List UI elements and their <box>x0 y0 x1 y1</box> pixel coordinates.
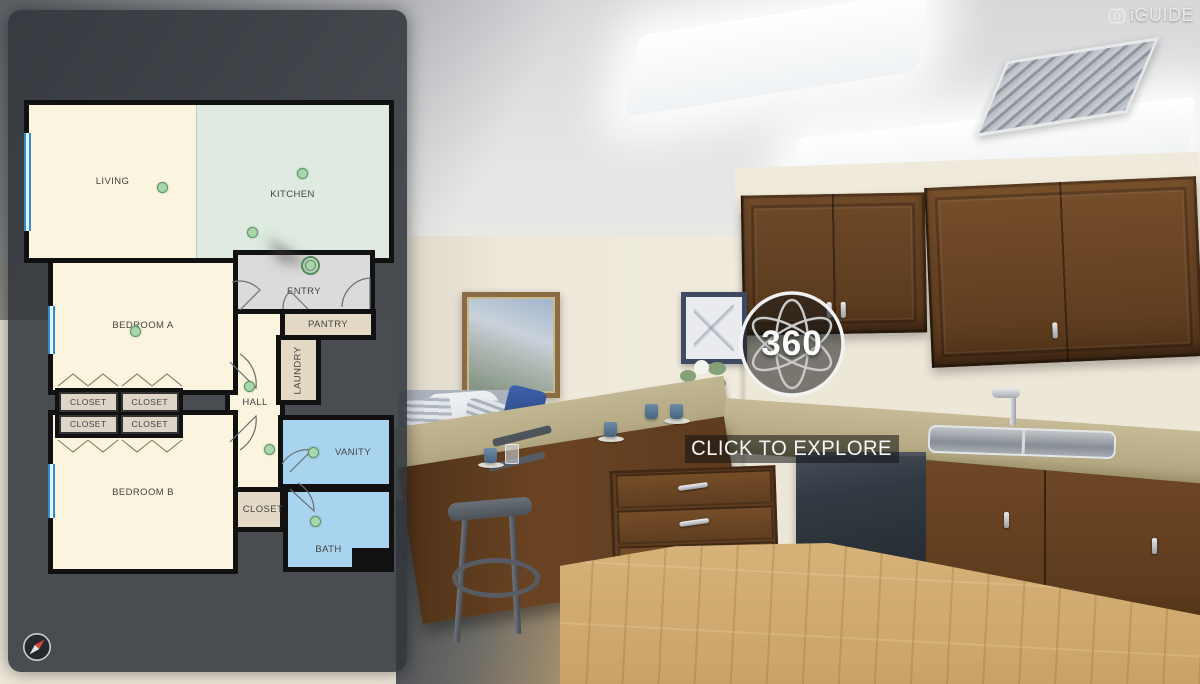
room-label-hall-closet: CLOSET <box>235 504 283 515</box>
room-living[interactable]: LIVING <box>30 105 197 258</box>
camera-dot-kitchen-a[interactable] <box>297 168 308 179</box>
iguide-logo-icon <box>1108 7 1126 25</box>
click-to-explore-label: CLICK TO EXPLORE <box>692 437 893 461</box>
badge-360-number: 360 <box>737 289 847 399</box>
room-label-closet: CLOSET <box>132 419 168 429</box>
glass <box>505 444 519 464</box>
room-entry[interactable]: ENTRY <box>233 250 375 314</box>
camera-dot-vanity[interactable] <box>308 447 319 458</box>
framed-painting <box>462 292 560 398</box>
camera-dot-living[interactable] <box>157 182 168 193</box>
room-closet-4[interactable]: CLOSET <box>121 415 180 435</box>
camera-dot-kitchen-b[interactable] <box>247 227 258 238</box>
iguide-logo: iGUIDE <box>1108 5 1194 26</box>
window <box>48 464 55 518</box>
window <box>24 133 31 231</box>
room-label-closet: CLOSET <box>70 419 106 429</box>
room-label-bedroom-a: BEDROOM A <box>112 320 173 331</box>
blue-cup <box>670 404 683 419</box>
room-label-living: LIVING <box>96 176 130 187</box>
blue-cup <box>484 448 497 463</box>
faucet-spout <box>992 388 1020 398</box>
floorplan[interactable]: HALL BEDROOM A BEDROOM B LIVING KITCHEN … <box>8 10 407 672</box>
room-closet-1[interactable]: CLOSET <box>59 392 118 412</box>
window <box>48 306 55 354</box>
room-closet-2[interactable]: CLOSET <box>121 392 180 412</box>
room-label-hall: HALL <box>242 397 267 408</box>
stool-footrest <box>452 558 540 598</box>
iguide-logo-text: iGUIDE <box>1130 5 1194 26</box>
camera-dot-hall-b[interactable] <box>264 444 275 455</box>
upper-cabinets <box>924 176 1200 368</box>
camera-dot-hall-a[interactable] <box>244 381 255 392</box>
room-label-closet: CLOSET <box>70 397 106 407</box>
closet-block: CLOSET CLOSET CLOSET CLOSET <box>55 388 183 438</box>
room-living-kitchen[interactable]: LIVING KITCHEN <box>24 100 394 263</box>
room-label-pantry: PANTRY <box>308 319 348 330</box>
room-label-entry: ENTRY <box>287 286 321 297</box>
badge-360[interactable]: 360 <box>737 289 847 399</box>
blue-cup <box>645 404 658 419</box>
click-to-explore-button[interactable]: CLICK TO EXPLORE <box>685 435 899 463</box>
room-closet-3[interactable]: CLOSET <box>59 415 118 435</box>
room-bedroom-a[interactable]: BEDROOM A <box>48 255 238 395</box>
floorplan-panel[interactable]: HALL BEDROOM A BEDROOM B LIVING KITCHEN … <box>8 10 407 672</box>
camera-dot-bath[interactable] <box>310 516 321 527</box>
compass[interactable] <box>22 632 52 662</box>
room-vanity[interactable]: VANITY <box>278 415 394 489</box>
compass-icon <box>22 632 52 662</box>
camera-dot-bedroom-a[interactable] <box>130 326 141 337</box>
room-kitchen[interactable]: KITCHEN <box>197 105 389 258</box>
bath-wall-notch <box>352 548 394 572</box>
camera-dot-entry[interactable] <box>305 260 316 271</box>
room-laundry[interactable]: LAUNDRY <box>276 335 321 405</box>
room-hall-closet[interactable]: CLOSET <box>233 487 285 532</box>
room-label-laundry: LAUNDRY <box>293 346 304 394</box>
room-label-kitchen: KITCHEN <box>270 189 315 200</box>
blue-cup <box>604 422 617 437</box>
room-label-closet: CLOSET <box>132 397 168 407</box>
room-label-bedroom-b: BEDROOM B <box>112 487 174 498</box>
